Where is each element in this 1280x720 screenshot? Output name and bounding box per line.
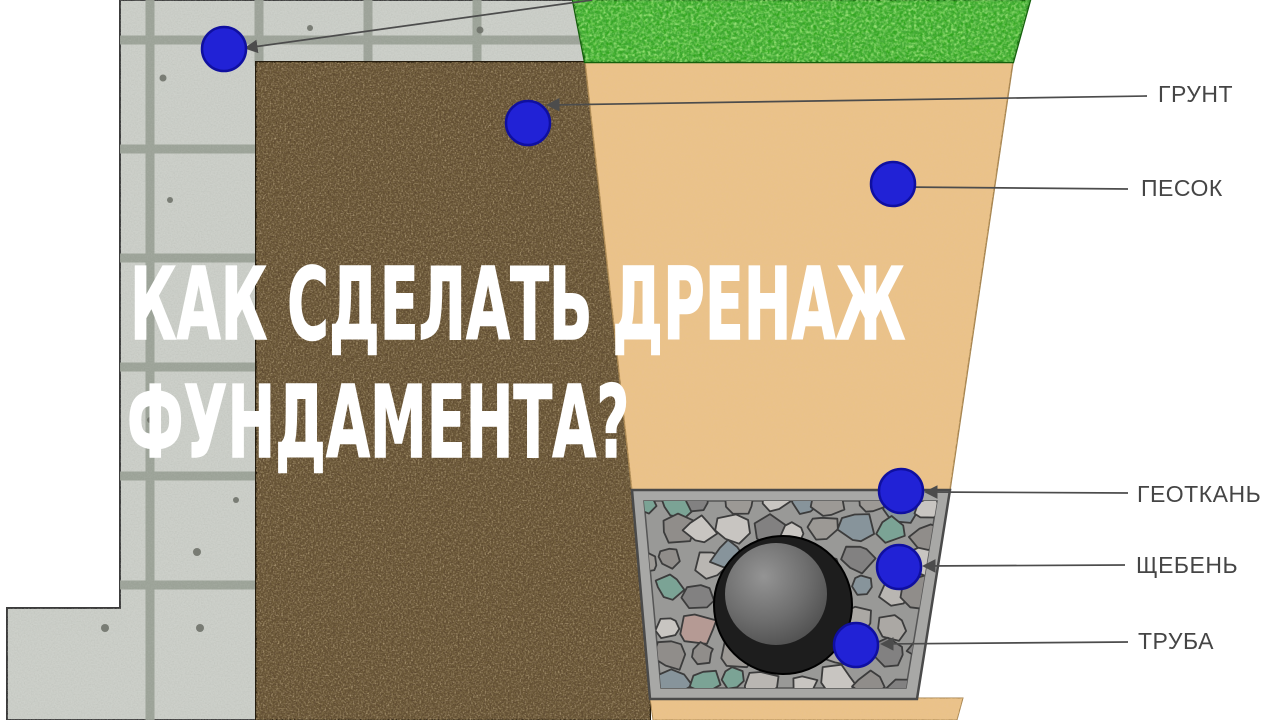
leader-line-geotkan xyxy=(926,492,1128,493)
marker-dot-pesok xyxy=(871,162,915,206)
title-line-1: КАК СДЕЛАТЬ ДРЕНАЖ xyxy=(130,255,905,355)
marker-dot-truba xyxy=(834,623,878,667)
label-pesok: ПЕСОК xyxy=(1141,176,1223,201)
label-shcheben: ЩЕБЕНЬ xyxy=(1136,553,1238,578)
label-truba: ТРУБА xyxy=(1138,629,1214,654)
marker-dot-grunt xyxy=(506,101,550,145)
grass-region xyxy=(570,0,1034,66)
thumbnail-page: { "title": { "line1": "КАК СДЕЛАТЬ ДРЕНА… xyxy=(0,0,1280,720)
drain-box xyxy=(618,487,951,702)
marker-dot-shcheben xyxy=(877,545,921,589)
gravel-stone xyxy=(852,576,872,595)
gravel-stone xyxy=(681,585,714,608)
label-geotkan: ГЕОТКАНЬ xyxy=(1137,482,1261,507)
gravel-stone xyxy=(655,618,679,638)
drain-pipe xyxy=(714,536,852,674)
marker-dot-wall xyxy=(202,27,246,71)
label-grunt: ГРУНТ xyxy=(1158,82,1233,107)
title-line-2: ФУНДАМЕНТА? xyxy=(127,373,629,473)
marker-dot-geotkan xyxy=(879,469,923,513)
leader-line-shcheben xyxy=(924,565,1125,566)
